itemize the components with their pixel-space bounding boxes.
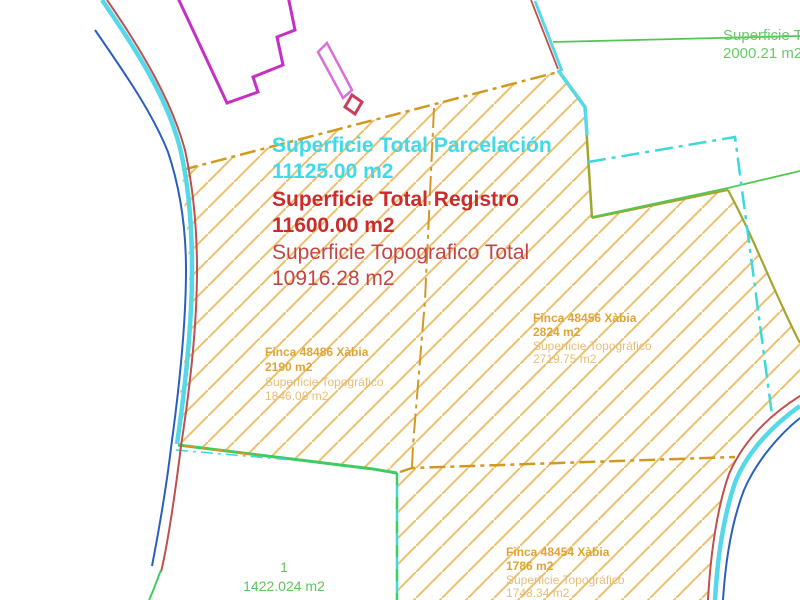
building-outline-magenta (177, 0, 295, 103)
neighbor-parcel-value: 2000.21 m2 (723, 45, 800, 62)
finca-48454-name: Finca 48454 Xàbia (506, 545, 610, 559)
neighbor-parcel-label: Superficie Tot (723, 27, 800, 44)
finca-48456-topo-label: Superficie Topográfico (533, 339, 652, 353)
finca-48486-area: 2190 m2 (265, 360, 313, 374)
finca-48454-area: 1786 m2 (506, 559, 554, 573)
building-outline-pink (318, 43, 352, 98)
building-outline-red (345, 95, 362, 114)
total-topografico-value: 10916.28 m2 (272, 267, 395, 290)
total-registro-value: 11600.00 m2 (272, 214, 395, 237)
finca-48456-name: Finca 48456 Xàbia (533, 311, 637, 325)
finca-48486-topo-area: 1846.08 m2 (265, 389, 329, 403)
road-left-green-end (149, 570, 161, 600)
finca-48486-topo-label: Superficie Topográfico (265, 375, 384, 389)
road-left-cyan (102, 0, 192, 444)
finca-48456-topo-area: 2719.75 m2 (533, 352, 597, 366)
finca-48454-topo-area: 1748.34 m2 (506, 586, 570, 600)
finca-48456-area: 2824 m2 (533, 325, 581, 339)
top-limit-cyan (535, 1, 562, 71)
total-parcelacion-label: Superficie Total Parcelación (272, 134, 552, 157)
top-limit-red (531, 0, 558, 69)
finca-48486-name: Finca 48486 Xàbia (265, 345, 369, 359)
road-left-red (107, 0, 197, 572)
total-registro-label: Superficie Total Registro (272, 188, 519, 211)
parcel-map-canvas: Superficie Total Parcelación 11125.00 m2… (0, 0, 800, 600)
plot1-area: 1422.024 m2 (243, 578, 325, 594)
cad-parcel-map: Superficie Total Parcelación 11125.00 m2… (0, 0, 800, 600)
total-topografico-label: Superficie Topografico Total (272, 241, 529, 264)
road-left-blue (95, 30, 186, 566)
total-parcelacion-value: 11125.00 m2 (272, 160, 393, 183)
plot1-number: 1 (280, 559, 288, 575)
finca-48454-topo-label: Superficie Topográfico (506, 573, 625, 587)
